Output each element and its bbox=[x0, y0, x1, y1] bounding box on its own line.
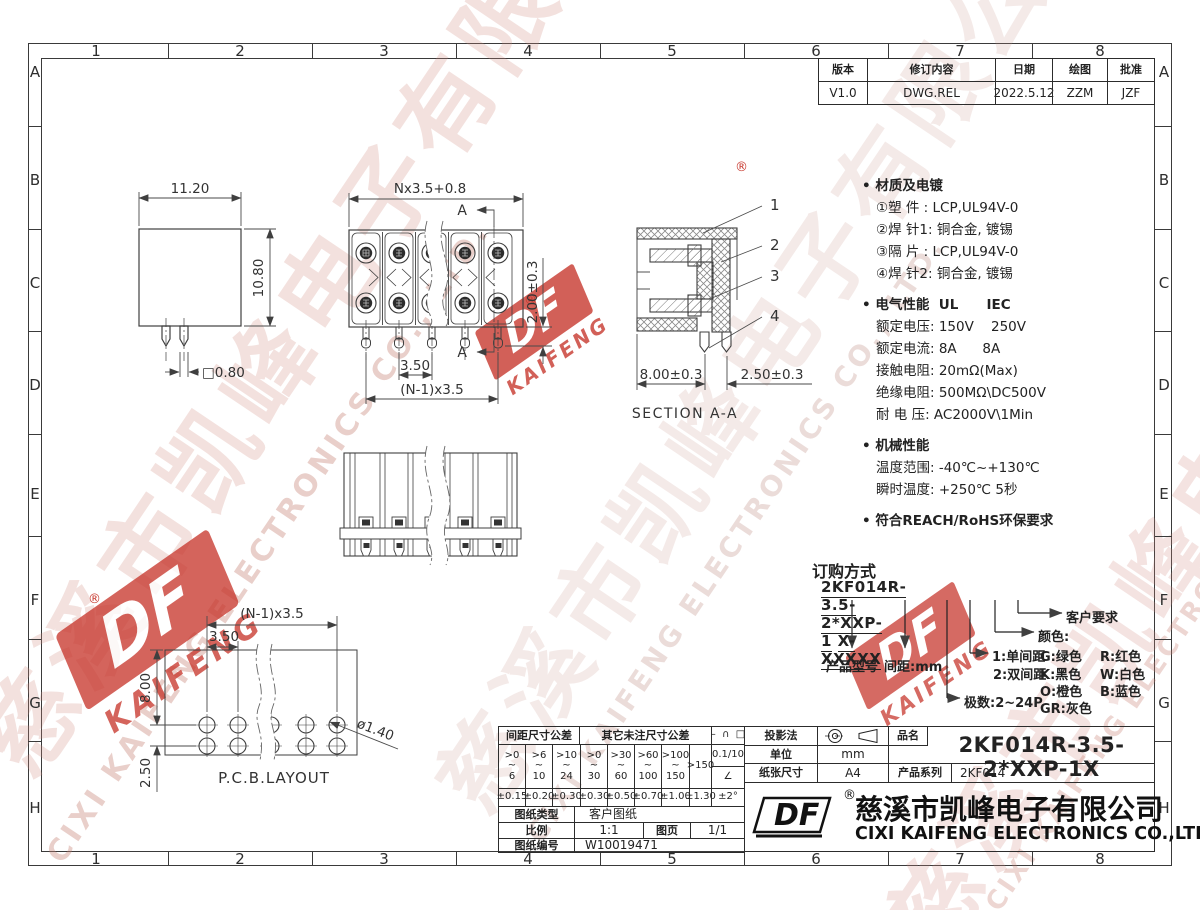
zone-row: G bbox=[1158, 694, 1170, 712]
note-line: 耐 电 压: AC2000V\1Min bbox=[862, 404, 1162, 426]
company-name-en: CIXI KAIFENG ELECTRONICS CO.,LTD bbox=[855, 824, 1155, 844]
note-material-title: 材质及电镀 bbox=[862, 175, 1162, 197]
zone-col: 6 bbox=[811, 850, 821, 868]
scale-label: 比例 bbox=[498, 822, 575, 839]
part-number: 2KF014R-3.5-2*XXP-1X bbox=[928, 733, 1155, 781]
paper-size-value: A4 bbox=[817, 763, 889, 783]
tol-other-header: 其它未注尺寸公差 bbox=[579, 726, 712, 745]
company-name-cn: 慈溪市凯峰电子有限公司 bbox=[855, 788, 1155, 828]
callout-4: 4 bbox=[770, 307, 780, 325]
drawing-number-label: 图纸编号 bbox=[498, 838, 575, 853]
zone-col: 4 bbox=[523, 42, 533, 60]
revision-header: 批准 bbox=[1107, 58, 1155, 82]
ordering-code: 2KF014R-3.5-2*XXP-1 X-XXXXX bbox=[821, 578, 906, 668]
dim-pin-protrusion: 2.00±0.3 bbox=[525, 261, 541, 324]
callout-2: 2 bbox=[770, 236, 780, 254]
tol-angle-value: ±2° bbox=[711, 788, 745, 807]
zone-row: E bbox=[30, 485, 39, 503]
section-mark-bottom: A bbox=[457, 345, 467, 361]
note-mechanical-title: 机械性能 bbox=[862, 435, 1162, 457]
tol-range: >10 ~ 24 bbox=[552, 744, 581, 789]
ordering-label-pitch: 间距:mm bbox=[884, 656, 942, 675]
ordering-color: GR:灰色 bbox=[1040, 698, 1092, 717]
dim-section-depth: 8.00±0.3 bbox=[640, 367, 703, 383]
section-mark-top: A bbox=[457, 203, 467, 219]
tol-value: ±0.30 bbox=[552, 788, 581, 807]
revision-value: V1.0 bbox=[818, 81, 868, 105]
pcb-layout-title: P.C.B.LAYOUT bbox=[218, 769, 330, 787]
zone-col: 3 bbox=[379, 42, 389, 60]
unit-value: mm bbox=[817, 745, 889, 764]
dim-pin-size: □0.80 bbox=[202, 365, 245, 381]
note-line: 温度范围: -40℃~+130℃ bbox=[862, 457, 1162, 479]
dim-pcb-row-offset: 8.00 bbox=[138, 673, 154, 703]
zone-col: 7 bbox=[955, 850, 965, 868]
note-line: 额定电流: 8A 8A bbox=[862, 338, 1162, 360]
zone-row: F bbox=[31, 591, 40, 609]
tol-value: ±0.30 bbox=[580, 788, 608, 807]
tol-pitch-header: 间距尺寸公差 bbox=[498, 726, 580, 745]
ordering-color: G:绿色 bbox=[1040, 646, 1082, 665]
revision-header: 修订内容 bbox=[867, 58, 996, 82]
zone-row: B bbox=[30, 171, 40, 189]
paper-size-label: 纸张尺寸 bbox=[744, 763, 818, 783]
note-electrical-title: 电气性能 UL IEC bbox=[862, 294, 1162, 316]
dim-body-height: 10.80 bbox=[251, 259, 267, 298]
part-name-label: 品名 bbox=[888, 726, 928, 746]
note-line: ②焊 针1: 铜合金, 镀锡 bbox=[862, 219, 1162, 241]
dim-pcb-pitch: 3.50 bbox=[209, 629, 239, 645]
first-angle-projection-icon bbox=[821, 728, 885, 744]
note-line: 接触电阻: 20mΩ(Max) bbox=[862, 360, 1162, 382]
section-title: SECTION A-A bbox=[632, 406, 738, 422]
drawing-sheet: 慈溪市凯峰电子有限公司 CIXI KAIFENG ELECTRONICS CO.… bbox=[0, 0, 1200, 910]
ordering-label-row1: 1:单间距 bbox=[992, 646, 1045, 665]
zone-col: 3 bbox=[379, 850, 389, 868]
note-line: ③隔 片 : LCP,UL94V-0 bbox=[862, 241, 1162, 263]
tol-range-last: >150 bbox=[689, 744, 712, 789]
tol-value: ±0.20 bbox=[525, 788, 553, 807]
note-line: 瞬时温度: +250℃ 5秒 bbox=[862, 479, 1162, 501]
tol-value: ±0.15 bbox=[498, 788, 526, 807]
revision-value: 2022.5.12 bbox=[995, 81, 1053, 105]
revision-header: 版本 bbox=[818, 58, 868, 82]
tol-range: >6 ~ 10 bbox=[525, 744, 553, 789]
zone-row: H bbox=[29, 799, 40, 817]
ordering-label-poles: 极数:2~24P bbox=[964, 692, 1043, 711]
dim-span: (N-1)x3.5 bbox=[400, 382, 464, 398]
revision-value: ZZM bbox=[1052, 81, 1108, 105]
revision-value: JZF bbox=[1107, 81, 1155, 105]
zone-col: 5 bbox=[667, 42, 677, 60]
ordering-label-row2: 2:双间距 bbox=[993, 664, 1046, 683]
projection-label: 投影法 bbox=[744, 726, 818, 746]
ordering-code-main: 2KF014R-3.5-2*XXP-1 bbox=[821, 578, 906, 652]
tol-range: >60 ~ 100 bbox=[634, 744, 662, 789]
company-logo-text: DF bbox=[774, 798, 820, 833]
ordering-color: R:红色 bbox=[1100, 646, 1141, 665]
tol-value: ±1.30 bbox=[689, 788, 712, 807]
zone-col: 1 bbox=[91, 42, 101, 60]
callout-3: 3 bbox=[770, 267, 780, 285]
zone-row: F bbox=[1160, 591, 1169, 609]
note-line: 额定电压: 150V 250V bbox=[862, 316, 1162, 338]
tol-flatness: 0.1/10 bbox=[711, 744, 745, 767]
drawing-number-value: W10019471 bbox=[574, 838, 745, 853]
dim-pitch: 3.50 bbox=[400, 358, 430, 374]
zone-col: 1 bbox=[91, 850, 101, 868]
dim-total-width: Nx3.5+0.8 bbox=[394, 181, 466, 197]
tol-range: >100 ~ 150 bbox=[661, 744, 690, 789]
unit-label: 单位 bbox=[744, 745, 818, 764]
tol-value: ±0.50 bbox=[607, 788, 635, 807]
tol-value: ±0.70 bbox=[634, 788, 662, 807]
scale-value: 1:1 bbox=[574, 822, 644, 839]
ordering-color: B:蓝色 bbox=[1100, 681, 1141, 700]
revision-header: 日期 bbox=[995, 58, 1053, 82]
tol-angle-symbol: ∠ bbox=[711, 766, 745, 789]
zone-row: C bbox=[30, 274, 40, 292]
zone-row: A bbox=[1159, 63, 1169, 81]
callout-1: 1 bbox=[770, 196, 780, 214]
tol-range: >0 ~ 6 bbox=[498, 744, 526, 789]
revision-header: 绘图 bbox=[1052, 58, 1108, 82]
tol-range: >0 ~ 30 bbox=[580, 744, 608, 789]
ordering-label-color-title: 颜色: bbox=[1038, 626, 1069, 645]
ordering-label-model: 产品型号 bbox=[826, 656, 878, 675]
dim-body-width: 11.20 bbox=[171, 181, 210, 197]
zone-row: D bbox=[29, 376, 41, 394]
company-logo: DF bbox=[750, 792, 840, 844]
revision-value: DWG.REL bbox=[867, 81, 996, 105]
tol-range: >30 ~ 60 bbox=[607, 744, 635, 789]
projection-symbol-cell bbox=[817, 726, 889, 746]
ordering-label-customer: 客户要求 bbox=[1066, 607, 1118, 626]
dim-pcb-row-gap: 2.50 bbox=[138, 758, 154, 788]
dim-section-offset: 2.50±0.3 bbox=[741, 367, 804, 383]
note-line: 绝缘电阻: 500MΩ\DC500V bbox=[862, 382, 1162, 404]
zone-col: 2 bbox=[235, 850, 245, 868]
note-line: ①塑 件 : LCP,UL94V-0 bbox=[862, 197, 1162, 219]
sheet-type-label: 图纸类型 bbox=[498, 806, 575, 823]
zone-col: 2 bbox=[235, 42, 245, 60]
sheet-type-value: 客户图纸 bbox=[574, 806, 745, 823]
page-label: 图页 bbox=[643, 822, 691, 839]
note-line: ④焊 针2: 铜合金, 镀锡 bbox=[862, 263, 1162, 285]
note-compliance: 符合REACH/RoHS环保要求 bbox=[862, 510, 1162, 532]
zone-row: G bbox=[29, 694, 41, 712]
zone-col: 8 bbox=[1095, 850, 1105, 868]
notes-panel: 材质及电镀 ①塑 件 : LCP,UL94V-0 ②焊 针1: 铜合金, 镀锡 … bbox=[862, 175, 1162, 532]
tol-symbols: – ∩ □ bbox=[711, 726, 745, 745]
dim-pcb-span: (N-1)x3.5 bbox=[240, 606, 304, 622]
page-value: 1/1 bbox=[690, 822, 745, 839]
zone-row: A bbox=[30, 63, 40, 81]
